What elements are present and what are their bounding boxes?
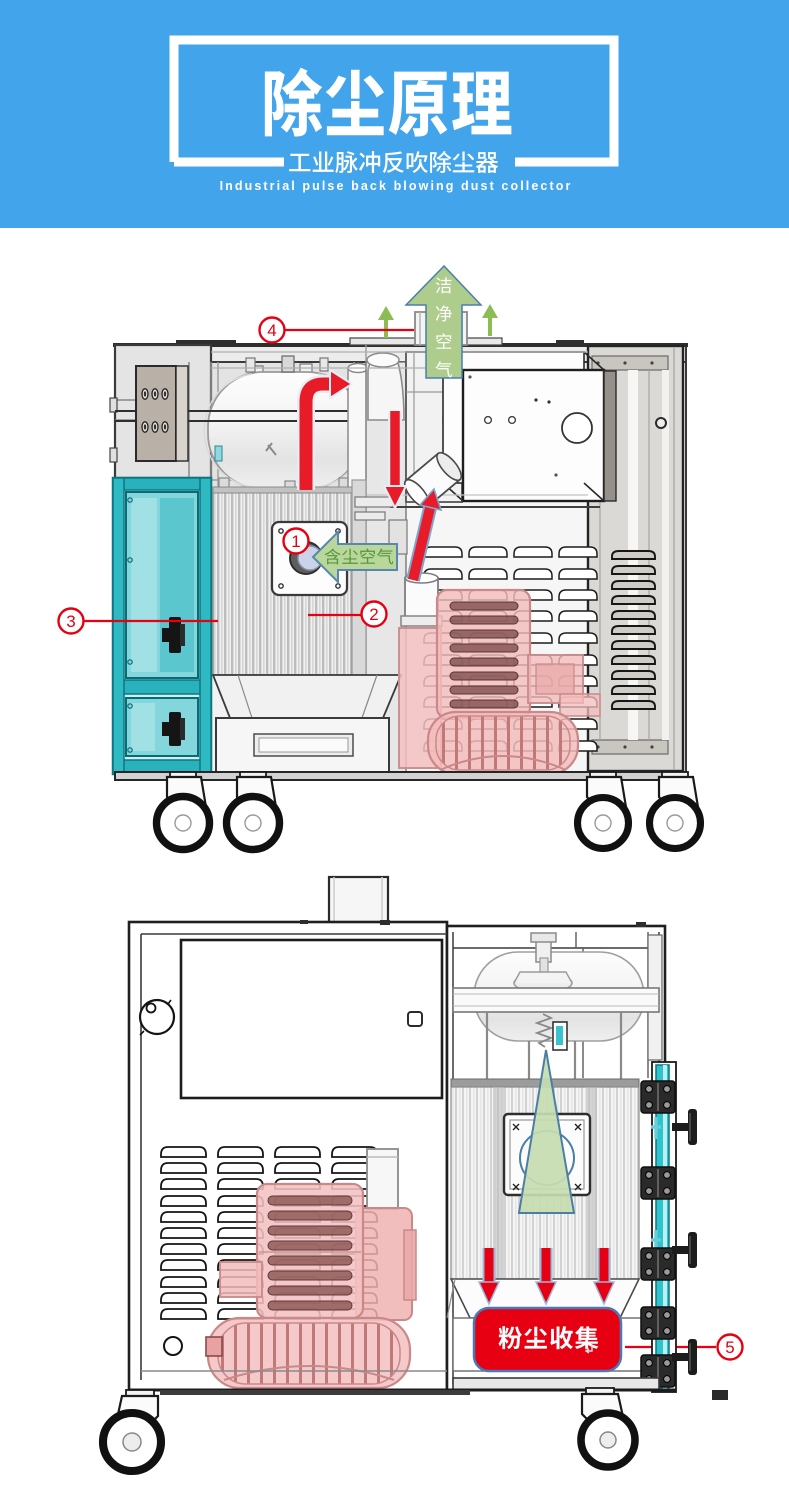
svg-text:5: 5 [725, 1338, 734, 1357]
svg-text:1: 1 [291, 532, 300, 551]
svg-text:2: 2 [369, 605, 378, 624]
svg-text:Industrial pulse back blowing: Industrial pulse back blowing dust colle… [220, 179, 573, 193]
svg-text:4: 4 [267, 321, 276, 340]
svg-text:3: 3 [66, 612, 75, 631]
